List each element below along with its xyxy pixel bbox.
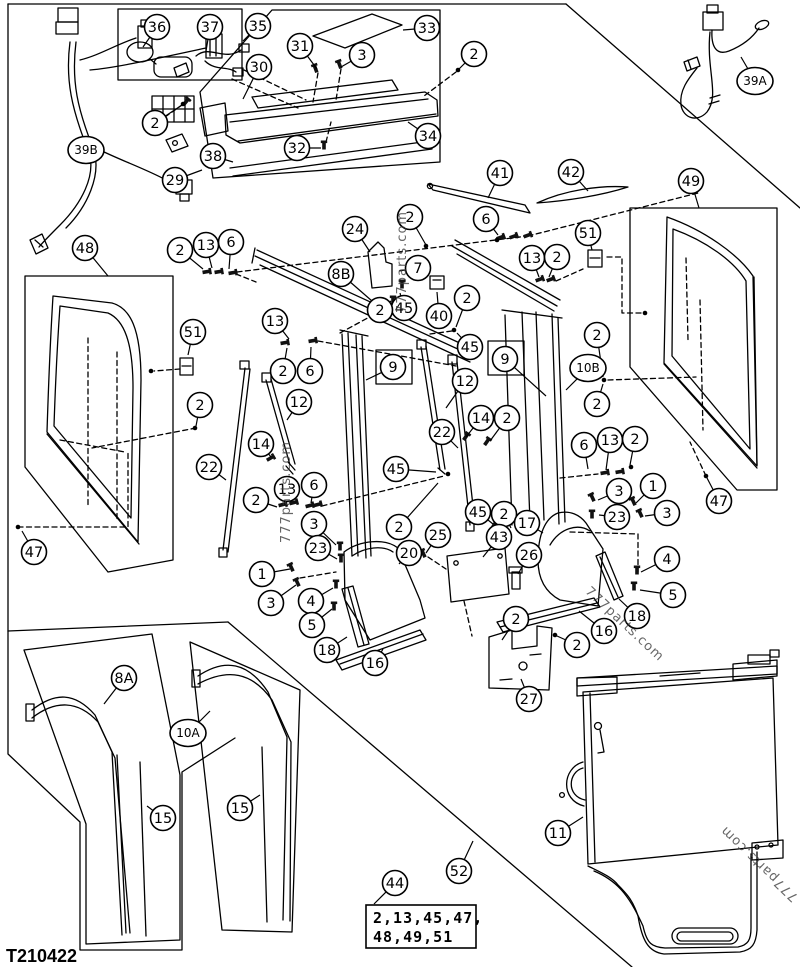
fastener-dot	[629, 465, 634, 470]
callout-23: 23	[306, 536, 338, 561]
svg-text:2: 2	[150, 116, 159, 132]
callout-2: 2	[623, 427, 648, 466]
screw-icon	[335, 59, 344, 70]
drawing-number: T210422	[6, 946, 77, 966]
svg-text:16: 16	[366, 656, 384, 672]
svg-text:30: 30	[250, 60, 268, 76]
svg-text:12: 12	[290, 395, 308, 411]
svg-text:33: 33	[418, 21, 436, 37]
svg-text:2: 2	[572, 638, 581, 654]
svg-text:6: 6	[481, 212, 490, 228]
callout-39B: 39B	[68, 137, 104, 164]
callout-30: 30	[243, 55, 272, 100]
callout-33: 33	[403, 16, 440, 41]
svg-text:6: 6	[226, 235, 235, 251]
callout-38: 38	[201, 144, 234, 169]
callout-41: 41	[488, 161, 513, 199]
callout-26: 26	[517, 543, 542, 575]
fastener-dot	[553, 633, 558, 638]
svg-text:3: 3	[662, 506, 671, 522]
svg-text:15: 15	[231, 801, 249, 817]
header-assembly	[200, 14, 438, 176]
callout-2: 2	[458, 42, 487, 71]
callout-2: 2	[545, 245, 570, 278]
wiring-harness-left	[30, 8, 222, 254]
fastener-dot	[704, 474, 709, 479]
svg-text:47: 47	[710, 494, 728, 510]
callout-2: 2	[368, 298, 393, 323]
svg-text:18: 18	[318, 643, 336, 659]
callout-16: 16	[363, 649, 388, 676]
callout-6: 6	[219, 230, 244, 270]
screw-icon	[337, 542, 343, 551]
svg-text:2: 2	[499, 507, 508, 523]
parts-diagram-page: 3637353031333222938323439B39A41424951132…	[0, 0, 800, 967]
svg-text:40: 40	[430, 309, 448, 325]
watermark: 777parts.com	[718, 823, 800, 905]
svg-text:51: 51	[184, 325, 202, 341]
svg-text:29: 29	[166, 173, 184, 189]
fastener-dot	[193, 426, 198, 431]
screw-icon	[338, 554, 344, 563]
reference-note-box: 2,13,45,47, 48,49,51	[366, 905, 483, 948]
svg-text:2: 2	[552, 250, 561, 266]
callout-10B: 10B	[566, 355, 606, 391]
callout-1: 1	[250, 562, 291, 587]
svg-text:8A: 8A	[114, 671, 133, 687]
wiper-motor-detail-box	[118, 9, 242, 80]
callout-35: 35	[243, 14, 271, 42]
callout-14: 14	[466, 406, 494, 438]
switch-40	[430, 276, 444, 289]
svg-text:7: 7	[413, 261, 422, 277]
callout-15: 15	[228, 795, 261, 821]
svg-text:22: 22	[433, 425, 451, 441]
svg-text:1: 1	[257, 567, 266, 583]
screw-icon	[202, 268, 212, 276]
callout-8A: 8A	[104, 666, 137, 705]
fastener-dot	[446, 472, 451, 477]
callout-48: 48	[73, 236, 109, 277]
seal-strip-38	[230, 141, 430, 168]
screw-icon	[589, 510, 595, 519]
svg-text:26: 26	[520, 548, 538, 564]
screw-icon	[214, 268, 224, 276]
screw-icon	[634, 566, 640, 575]
svg-text:14: 14	[252, 437, 270, 453]
callout-17: 17	[515, 511, 544, 536]
svg-text:22: 22	[200, 460, 218, 476]
svg-text:2: 2	[462, 291, 471, 307]
svg-text:3: 3	[266, 596, 275, 612]
svg-text:13: 13	[601, 433, 619, 449]
svg-text:25: 25	[429, 528, 447, 544]
callout-45: 45	[457, 333, 483, 360]
svg-text:2: 2	[630, 432, 639, 448]
svg-text:3: 3	[614, 484, 623, 500]
bracket-27	[489, 626, 552, 690]
svg-text:2: 2	[394, 520, 403, 536]
wiper-motor-detail	[127, 42, 249, 77]
svg-text:10A: 10A	[176, 726, 200, 740]
svg-text:2: 2	[375, 303, 384, 319]
callout-8B: 8B	[329, 262, 373, 302]
svg-text:41: 41	[491, 166, 509, 182]
callout-3: 3	[341, 43, 375, 68]
svg-text:34: 34	[419, 129, 437, 145]
callout-2: 2	[244, 488, 278, 513]
svg-text:49: 49	[682, 174, 700, 190]
svg-text:27: 27	[520, 692, 538, 708]
fastener-dot	[16, 525, 21, 530]
svg-text:38: 38	[204, 149, 222, 165]
screw-icon	[615, 468, 625, 476]
callout-6: 6	[572, 433, 597, 470]
svg-text:6: 6	[305, 364, 314, 380]
svg-text:13: 13	[266, 314, 284, 330]
callout-43: 43	[483, 525, 512, 558]
screw-icon	[321, 141, 327, 150]
callout-15: 15	[147, 806, 176, 831]
svg-text:23: 23	[309, 541, 327, 557]
callout-13: 13	[520, 246, 545, 278]
svg-text:10B: 10B	[576, 361, 600, 375]
callout-36: 36	[143, 15, 170, 48]
callout-29: 29	[163, 168, 203, 193]
callout-49: 49	[679, 169, 704, 209]
screw-icon	[228, 269, 238, 277]
svg-text:24: 24	[346, 222, 364, 238]
callout-13: 13	[194, 233, 219, 269]
screw-icon	[635, 508, 645, 519]
callout-13: 13	[598, 428, 623, 471]
svg-text:39A: 39A	[743, 74, 767, 88]
bolt-26	[512, 572, 520, 589]
svg-text:45: 45	[387, 462, 405, 478]
screw-icon	[311, 63, 320, 74]
svg-text:4: 4	[662, 552, 671, 568]
svg-text:51: 51	[579, 226, 597, 242]
svg-text:6: 6	[309, 478, 318, 494]
callout-31: 31	[288, 34, 318, 70]
callout-24: 24	[343, 217, 371, 253]
callout-6: 6	[302, 473, 327, 504]
callout-42: 42	[559, 160, 589, 192]
svg-text:2: 2	[592, 328, 601, 344]
door-panel	[583, 678, 778, 864]
note-line-2: 48,49,51	[373, 928, 453, 946]
door-handle	[595, 723, 602, 730]
svg-text:36: 36	[148, 20, 166, 36]
svg-text:45: 45	[469, 505, 487, 521]
callout-6: 6	[474, 207, 499, 236]
svg-text:3: 3	[357, 48, 366, 64]
callout-27: 27	[517, 679, 542, 712]
svg-text:3: 3	[309, 517, 318, 533]
svg-text:43: 43	[490, 530, 508, 546]
svg-text:13: 13	[523, 251, 541, 267]
svg-text:5: 5	[668, 588, 677, 604]
callout-40: 40	[427, 292, 452, 329]
callout-layer: 3637353031333222938323439B39A41424951132…	[22, 14, 774, 905]
svg-text:44: 44	[386, 876, 404, 892]
callout-18: 18	[315, 637, 348, 663]
callout-51: 51	[181, 320, 206, 356]
callout-2: 2	[490, 406, 520, 442]
callout-22: 22	[197, 455, 227, 481]
callout-2: 2	[455, 286, 480, 328]
callout-12: 12	[287, 390, 312, 421]
screw-icon	[509, 232, 520, 241]
wiring-harness-right	[681, 5, 770, 118]
svg-text:35: 35	[249, 19, 267, 35]
screw-icon	[535, 275, 546, 284]
svg-text:1: 1	[648, 479, 657, 495]
svg-text:45: 45	[461, 340, 479, 356]
callout-4: 4	[641, 547, 680, 573]
diagram-canvas: 3637353031333222938323439B39A41424951132…	[0, 0, 800, 967]
svg-text:13: 13	[197, 238, 215, 254]
callout-51: 51	[576, 221, 601, 251]
wiper-blade-42	[537, 187, 628, 203]
callout-3: 3	[259, 585, 297, 616]
svg-text:16: 16	[595, 624, 613, 640]
svg-text:47: 47	[25, 545, 43, 561]
svg-text:14: 14	[472, 411, 490, 427]
svg-text:2: 2	[251, 493, 260, 509]
callout-2: 2	[271, 348, 296, 384]
screw-icon	[280, 339, 290, 347]
watermark: 777parts.com	[279, 441, 294, 543]
callout-52: 52	[447, 841, 474, 884]
callout-47: 47	[22, 531, 47, 565]
callout-22: 22	[430, 420, 459, 449]
svg-text:12: 12	[456, 374, 474, 390]
svg-text:42: 42	[562, 165, 580, 181]
window-seal	[664, 364, 757, 468]
callout-13: 13	[263, 309, 290, 340]
svg-text:2: 2	[511, 612, 520, 628]
channel-8a-box	[24, 634, 180, 944]
callout-44: 44	[374, 871, 408, 905]
bracket-43	[447, 548, 509, 602]
seal-15-left	[140, 762, 146, 936]
seal-15-right	[262, 747, 267, 922]
svg-text:52: 52	[450, 864, 468, 880]
svg-text:9: 9	[500, 352, 509, 368]
screw-icon	[333, 580, 339, 589]
callout-6: 6	[298, 347, 323, 384]
svg-text:20: 20	[400, 546, 418, 562]
svg-text:2: 2	[195, 398, 204, 414]
callout-47: 47	[707, 478, 732, 514]
screw-icon	[308, 337, 318, 345]
screw-icon	[523, 231, 534, 240]
svg-text:15: 15	[154, 811, 172, 827]
svg-text:8B: 8B	[331, 267, 350, 283]
screw-icon	[587, 492, 597, 503]
callout-2: 2	[585, 384, 610, 417]
callout-23: 23	[599, 505, 630, 530]
callout-9: 9	[366, 355, 406, 381]
screw-icon	[631, 582, 637, 591]
svg-text:48: 48	[76, 241, 94, 257]
callout-2: 2	[188, 393, 213, 427]
callout-14: 14	[249, 432, 274, 458]
svg-text:37: 37	[201, 20, 219, 36]
callout-45: 45	[384, 457, 437, 482]
svg-text:11: 11	[549, 826, 567, 842]
svg-text:17: 17	[518, 516, 536, 532]
screw-icon	[600, 469, 610, 477]
left-window-frame	[47, 296, 193, 544]
callout-25: 25	[426, 523, 451, 554]
svg-text:39B: 39B	[74, 143, 98, 157]
fastener-dot	[602, 378, 607, 383]
svg-text:9: 9	[388, 360, 397, 376]
callout-5: 5	[640, 583, 686, 608]
callout-4: 4	[299, 588, 334, 614]
callout-11: 11	[546, 817, 584, 846]
callout-2: 2	[502, 607, 529, 641]
callout-45: 45	[466, 500, 494, 525]
svg-text:31: 31	[291, 39, 309, 55]
callout-3: 3	[598, 479, 632, 504]
door-assembly	[560, 650, 783, 954]
svg-text:2: 2	[175, 243, 184, 259]
fastener-dot	[643, 311, 648, 316]
screw-icon	[482, 436, 492, 447]
fastener-dot	[149, 369, 154, 374]
callout-39A: 39A	[737, 57, 773, 95]
screw-icon	[286, 562, 296, 573]
svg-text:2: 2	[469, 47, 478, 63]
screw-icon	[546, 275, 557, 284]
fastener-dot	[495, 238, 500, 243]
callout-10A: 10A	[170, 711, 210, 747]
svg-text:5: 5	[307, 618, 316, 634]
callout-2: 2	[557, 633, 590, 658]
callout-5: 5	[300, 609, 333, 638]
watermark: 777parts.com	[395, 211, 410, 313]
diagram-line-art	[8, 4, 800, 967]
svg-text:2: 2	[592, 397, 601, 413]
svg-text:4: 4	[306, 594, 315, 610]
svg-text:23: 23	[608, 510, 626, 526]
svg-text:2: 2	[502, 411, 511, 427]
svg-text:6: 6	[579, 438, 588, 454]
callout-34: 34	[408, 122, 441, 149]
svg-text:2: 2	[278, 364, 287, 380]
note-line-1: 2,13,45,47,	[373, 909, 483, 927]
callout-1: 1	[636, 474, 666, 504]
callout-20: 20	[397, 541, 422, 566]
svg-text:32: 32	[288, 141, 306, 157]
callout-3: 3	[645, 501, 680, 526]
fastener-dot	[452, 328, 457, 333]
